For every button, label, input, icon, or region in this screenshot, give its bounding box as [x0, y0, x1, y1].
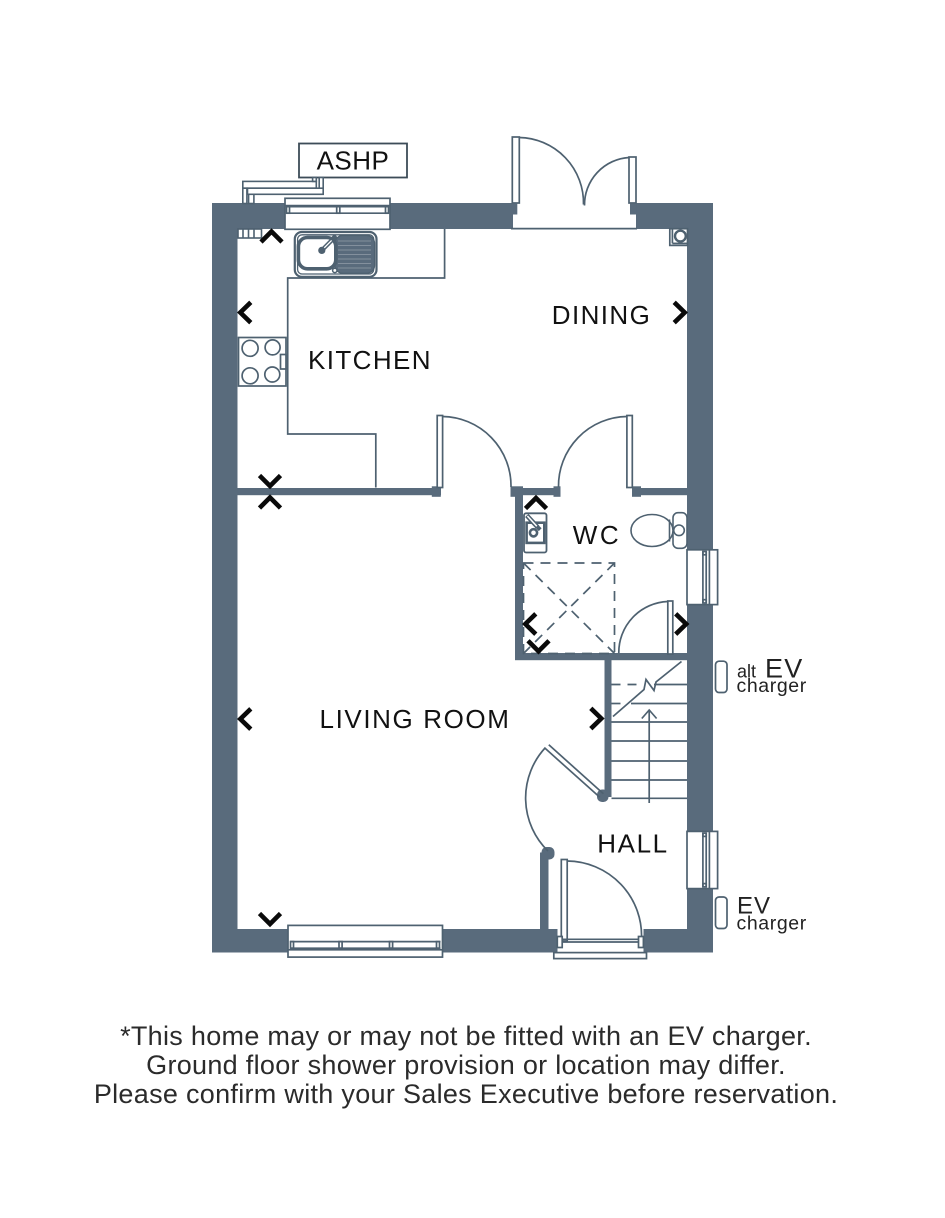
- svg-text:Please confirm with your Sales: Please confirm with your Sales Executive…: [94, 1079, 838, 1109]
- svg-text:KITCHEN: KITCHEN: [308, 345, 432, 375]
- svg-text:HALL: HALL: [597, 829, 668, 859]
- svg-text:ASHP: ASHP: [317, 146, 390, 176]
- svg-text:*This home may or may not be f: *This home may or may not be fitted with…: [120, 1021, 812, 1051]
- svg-text:WC: WC: [573, 520, 622, 550]
- svg-text:LIVING ROOM: LIVING ROOM: [320, 704, 511, 734]
- svg-text:charger: charger: [737, 913, 807, 935]
- svg-text:charger: charger: [737, 675, 807, 697]
- svg-text:DINING: DINING: [552, 300, 651, 330]
- svg-text:Ground floor shower provision: Ground floor shower provision or locatio…: [146, 1050, 786, 1080]
